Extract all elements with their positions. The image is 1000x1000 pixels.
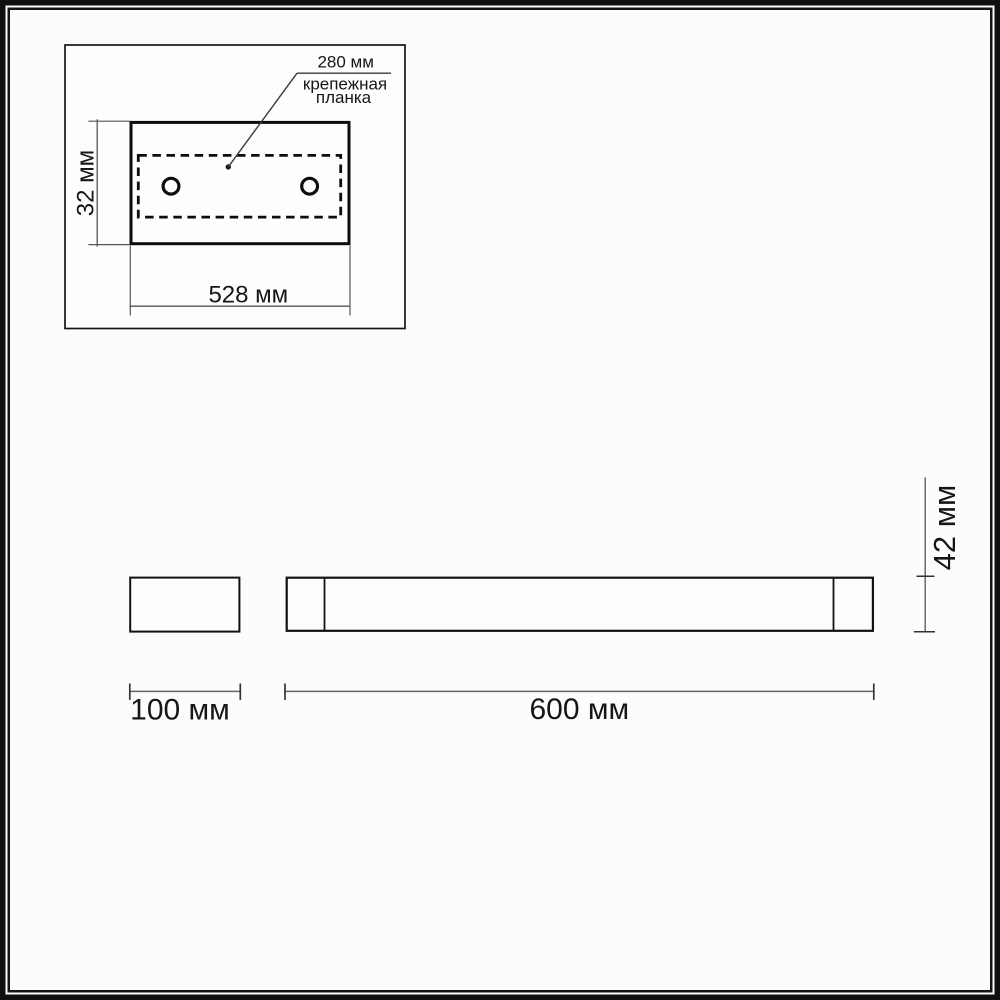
svg-text:32 мм: 32 мм xyxy=(72,150,99,216)
svg-text:528 мм: 528 мм xyxy=(208,281,288,308)
svg-text:280 мм: 280 мм xyxy=(317,53,373,72)
svg-text:планка: планка xyxy=(316,88,372,107)
svg-text:100 мм: 100 мм xyxy=(130,694,230,727)
svg-text:42 мм: 42 мм xyxy=(927,485,962,571)
svg-text:600 мм: 600 мм xyxy=(529,693,629,726)
